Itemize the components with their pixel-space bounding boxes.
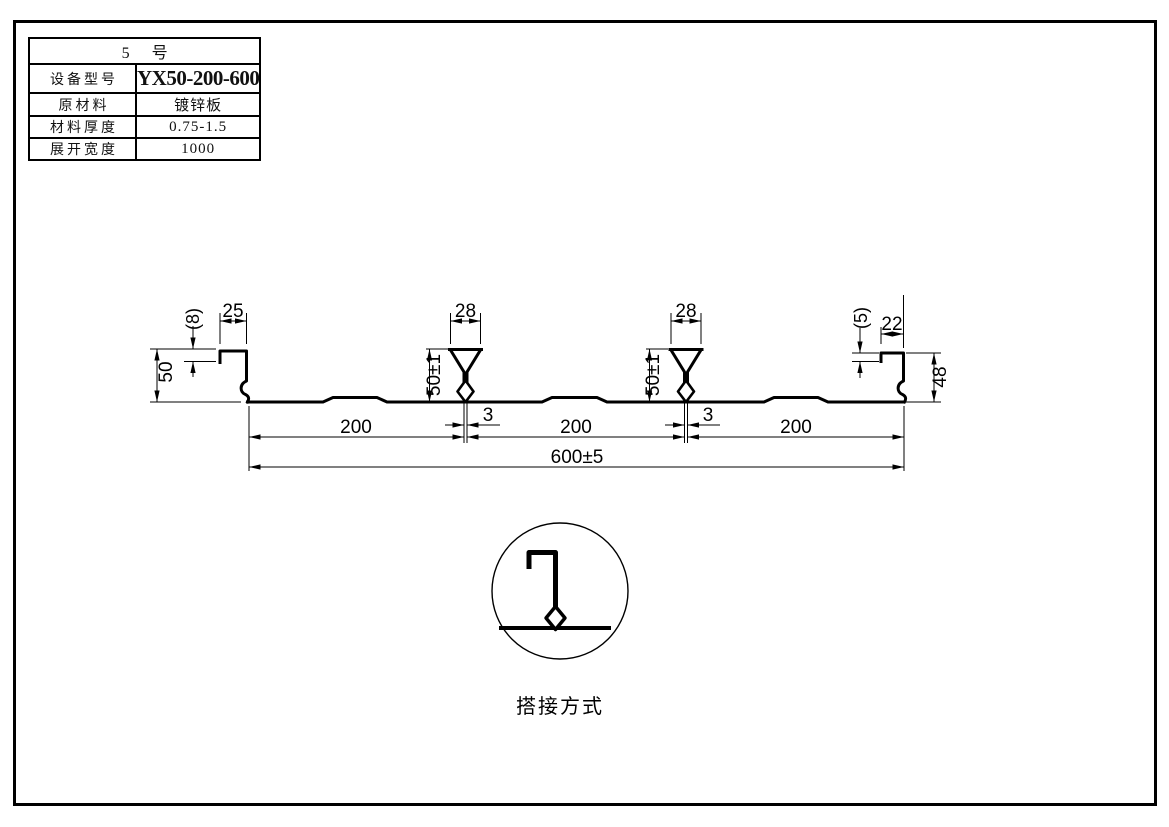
dim-label-overall: 600±5 <box>551 447 604 468</box>
dim-label-rib2-height: 50±1 <box>643 354 664 396</box>
vrib2-left-wall-path <box>671 350 685 381</box>
dim-label-rib1-width: 28 <box>455 301 476 322</box>
dim-label-pitch2: 200 <box>560 417 592 438</box>
vrib1-right-wall-path <box>467 350 481 381</box>
dimension-lines <box>150 295 941 471</box>
left-rib-path <box>220 351 249 402</box>
dim-label-pitch3: 200 <box>780 417 812 438</box>
vrib2-right-wall-path <box>688 350 702 381</box>
drawing-sheet: 5 号 设备型号 YX50-200-600 原材料 镀锌板 材料厚度 0.75-… <box>0 0 1169 827</box>
dim-label-right-height: 48 <box>930 366 951 387</box>
dim-label-right-hook: (5) <box>851 307 871 329</box>
right-rib-path <box>881 353 906 402</box>
lap-joint-detail: 搭接方式 <box>492 523 628 718</box>
vrib1-diamond <box>458 381 474 403</box>
dim-label-left-height: 50 <box>156 361 177 382</box>
dim-label-rib2-width: 28 <box>675 301 696 322</box>
dim-label-rib2-slot: 3 <box>703 405 714 426</box>
vrib1-left-wall-path <box>451 350 465 381</box>
dim-label-left-lip: 25 <box>222 301 243 322</box>
bottom-flange-path <box>248 398 904 403</box>
profile-outline <box>220 350 906 403</box>
dim-label-rib1-height: 50±1 <box>424 354 445 396</box>
profile-drawing: 25 (8) 50 28 50±1 3 28 50±1 3 22 (5) 48 … <box>0 0 1169 827</box>
dim-label-pitch1: 200 <box>340 417 372 438</box>
detail-circle <box>492 523 628 659</box>
dimension-labels: 25 (8) 50 28 50±1 3 28 50±1 3 22 (5) 48 … <box>156 301 951 468</box>
dim-label-right-lip: 22 <box>881 314 902 335</box>
vrib2-diamond <box>678 381 694 403</box>
detail-caption: 搭接方式 <box>516 695 604 718</box>
dim-label-rib1-slot: 3 <box>483 405 494 426</box>
dim-label-left-hook: (8) <box>183 308 203 330</box>
detail-rib-path <box>529 553 556 608</box>
